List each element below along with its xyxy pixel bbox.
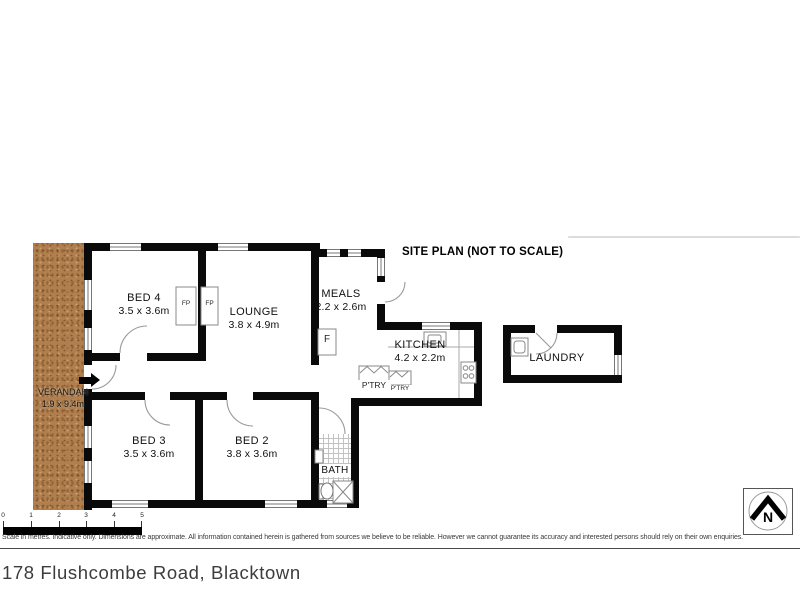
door-opening-bed3 xyxy=(145,392,170,400)
door-leaf-laundry xyxy=(536,333,551,348)
window-meals-top-2 xyxy=(348,249,361,257)
room-dims-lounge: 3.8 x 4.9m xyxy=(209,319,299,332)
room-dims-bed3: 3.5 x 3.6m xyxy=(104,448,194,461)
door-arc-bed2 xyxy=(227,400,253,426)
door-arc-meals-exterior xyxy=(385,282,405,302)
room-name-laundry: LAUNDRY xyxy=(512,352,602,365)
room-name-kitchen: KITCHEN xyxy=(375,339,465,352)
window-meals-top-1 xyxy=(327,249,340,257)
room-label-bed3: BED 3 3.5 x 3.6m xyxy=(104,435,194,460)
room-label-meals: MEALS 2.2 x 2.6m xyxy=(301,288,381,313)
room-name-bed3: BED 3 xyxy=(104,435,194,448)
room-label-verandah: VERANDAH 1.9 x 9.4m xyxy=(34,387,92,410)
room-name-bed2: BED 2 xyxy=(207,435,297,448)
entry-arrow xyxy=(79,377,91,384)
fireplace-label-left: FP xyxy=(176,300,196,307)
footer-divider xyxy=(0,548,800,549)
window-hall-left xyxy=(84,328,92,350)
window-bed3-bottom xyxy=(112,500,148,508)
stove-burner xyxy=(463,366,468,371)
door-opening-bed4 xyxy=(120,353,147,361)
door-arc-bath xyxy=(319,408,345,434)
north-label: N xyxy=(763,509,773,525)
scale-tick-4: 4 xyxy=(108,512,120,519)
pantry-box-small xyxy=(389,371,411,385)
room-dims-meals: 2.2 x 2.6m xyxy=(301,301,381,314)
scale-tick-3: 3 xyxy=(80,512,92,519)
window-bed3-left-1 xyxy=(84,426,92,448)
floor-plan-page: SITE PLAN (NOT TO SCALE) BED 4 3.5 x 3.6… xyxy=(0,0,800,600)
room-dims-kitchen: 4.2 x 2.2m xyxy=(375,352,465,365)
room-label-bed2: BED 2 3.8 x 3.6m xyxy=(207,435,297,460)
scale-tick-5: 5 xyxy=(136,512,148,519)
pantry-zigzag xyxy=(360,367,388,374)
window-kitchen-sink xyxy=(422,322,450,330)
door-arc-bed3 xyxy=(145,400,170,425)
room-dims-bed2: 3.8 x 3.6m xyxy=(207,448,297,461)
window-bed4-top xyxy=(110,243,141,251)
room-label-kitchen: KITCHEN 4.2 x 2.2m xyxy=(375,339,465,364)
wall-bed3-bed2 xyxy=(195,400,203,500)
page-title: SITE PLAN (NOT TO SCALE) xyxy=(402,246,563,258)
fridge-label: F xyxy=(318,334,336,345)
scale-tick-1: 1 xyxy=(25,512,37,519)
entry-arrow-head xyxy=(91,373,100,387)
wall-kitchen-bottom xyxy=(351,398,482,406)
window-bed2-bottom xyxy=(265,500,297,508)
stove-burner xyxy=(463,374,468,379)
fireplace-label-right: FP xyxy=(201,300,218,307)
door-opening-bed2 xyxy=(227,392,253,400)
window-bed3-left-2 xyxy=(84,461,92,483)
wall-laundry-bottom xyxy=(503,375,622,383)
door-opening-laundry xyxy=(535,325,557,333)
room-label-laundry: LAUNDRY xyxy=(512,352,602,365)
window-laundry-right xyxy=(614,355,622,375)
wall-laundry-top xyxy=(503,325,622,333)
room-name-verandah: VERANDAH xyxy=(34,387,92,399)
property-address: 178 Flushcombe Road, Blacktown xyxy=(2,562,462,584)
pantry-small-label: P'TRY xyxy=(386,385,414,392)
disclaimer-text: Scale in metres. Indicative only. Dimens… xyxy=(2,534,799,541)
scale-tick-0: 0 xyxy=(0,512,9,519)
room-label-lounge: LOUNGE 3.8 x 4.9m xyxy=(209,306,299,331)
wall-laundry-left xyxy=(503,325,511,383)
room-name-lounge: LOUNGE xyxy=(209,306,299,319)
door-arc-laundry xyxy=(536,333,557,354)
wall-kitchen-right xyxy=(474,322,482,406)
pantry-small-zigzag xyxy=(390,372,408,378)
wall-hall-bottom xyxy=(84,392,319,400)
window-bed4-left xyxy=(84,280,92,310)
window-meals-right xyxy=(377,258,385,276)
wall-bath-right xyxy=(351,406,359,508)
room-label-bath: BATH xyxy=(319,464,351,477)
wall-bed2-right xyxy=(311,392,319,508)
window-bath-bottom xyxy=(327,500,347,508)
scan-artifact-line xyxy=(568,236,800,238)
scale-tick-2: 2 xyxy=(53,512,65,519)
room-name-meals: MEALS xyxy=(301,288,381,301)
window-lounge-top xyxy=(218,243,248,251)
room-dims-verandah: 1.9 x 9.4m xyxy=(34,399,92,411)
north-compass: N xyxy=(743,488,793,535)
door-arc-bed4 xyxy=(120,326,147,353)
